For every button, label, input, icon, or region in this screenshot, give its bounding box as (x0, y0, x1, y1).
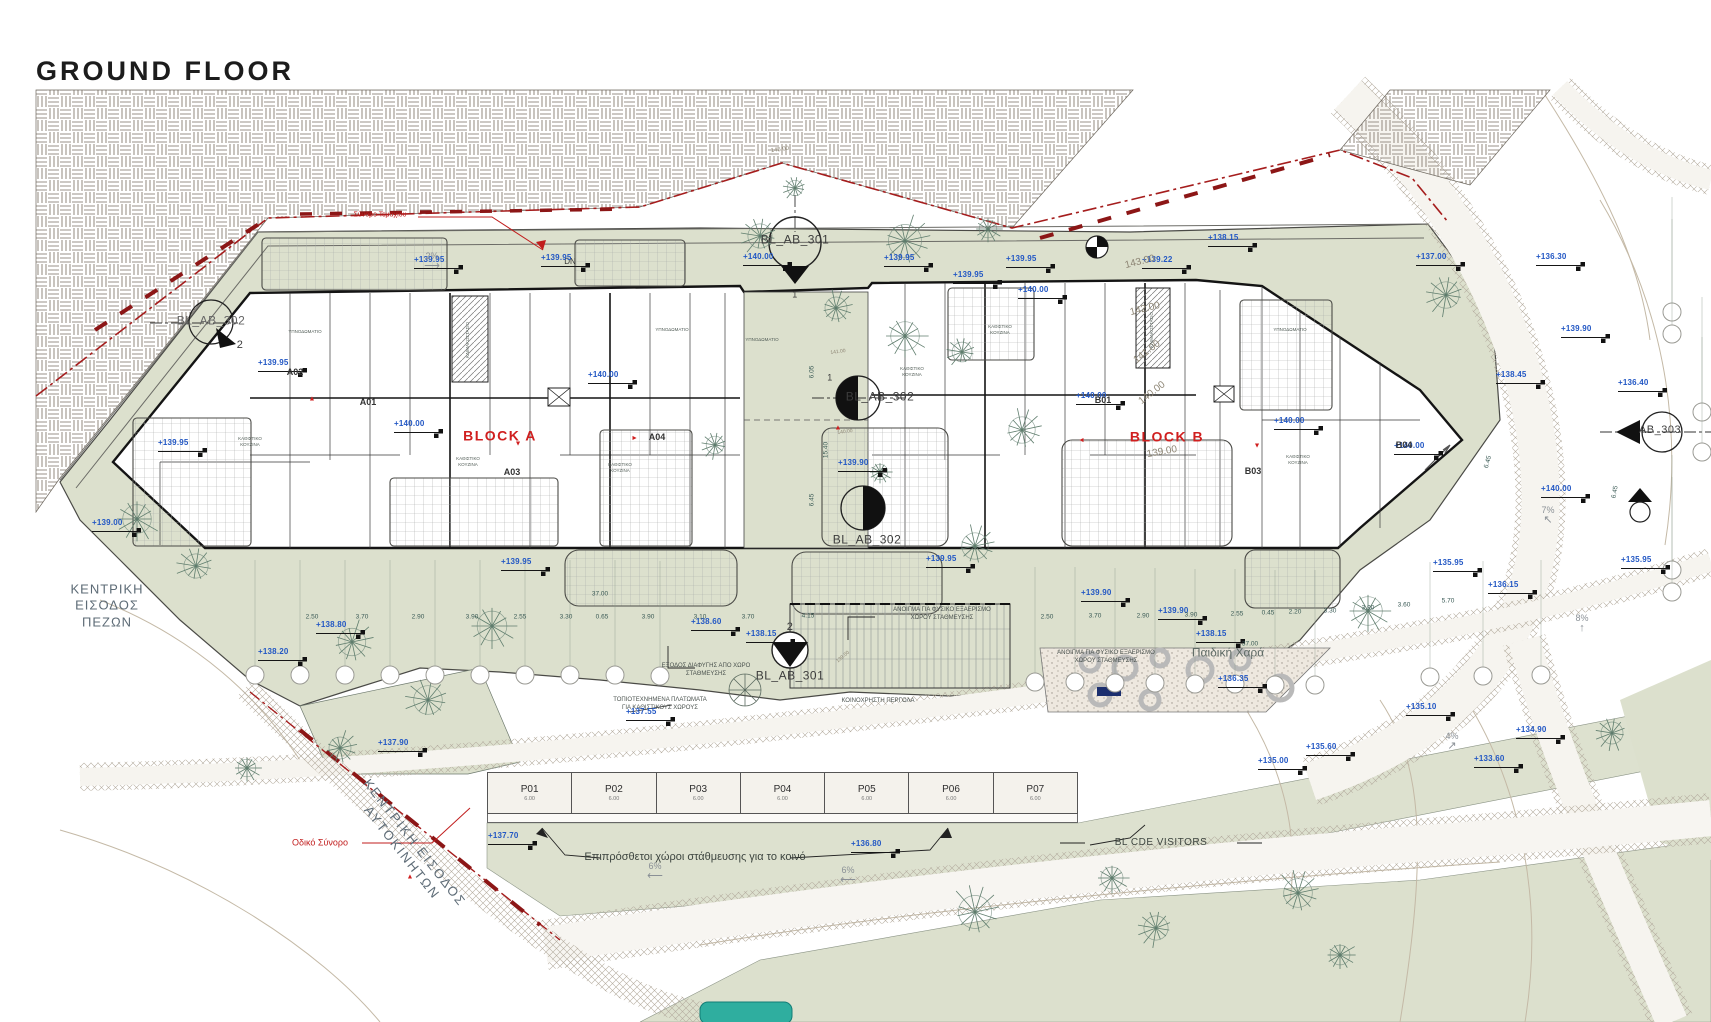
floor-plan-canvas: GROUND FLOOR ΚΕΝΤΡΙΚΗ ΕΙΣΟΔΟΣ ΠΕΖΩΝ ΚΕΝΤ… (0, 0, 1711, 1022)
tree-icon (1350, 595, 1392, 632)
pool-object (700, 1002, 792, 1022)
tree-icon (783, 177, 804, 198)
spiral-stair (729, 674, 761, 706)
pergola (790, 604, 1010, 688)
plan-drawing (0, 0, 1711, 1022)
grid-bubble (1663, 219, 1681, 343)
grid-bubble (1693, 337, 1711, 461)
